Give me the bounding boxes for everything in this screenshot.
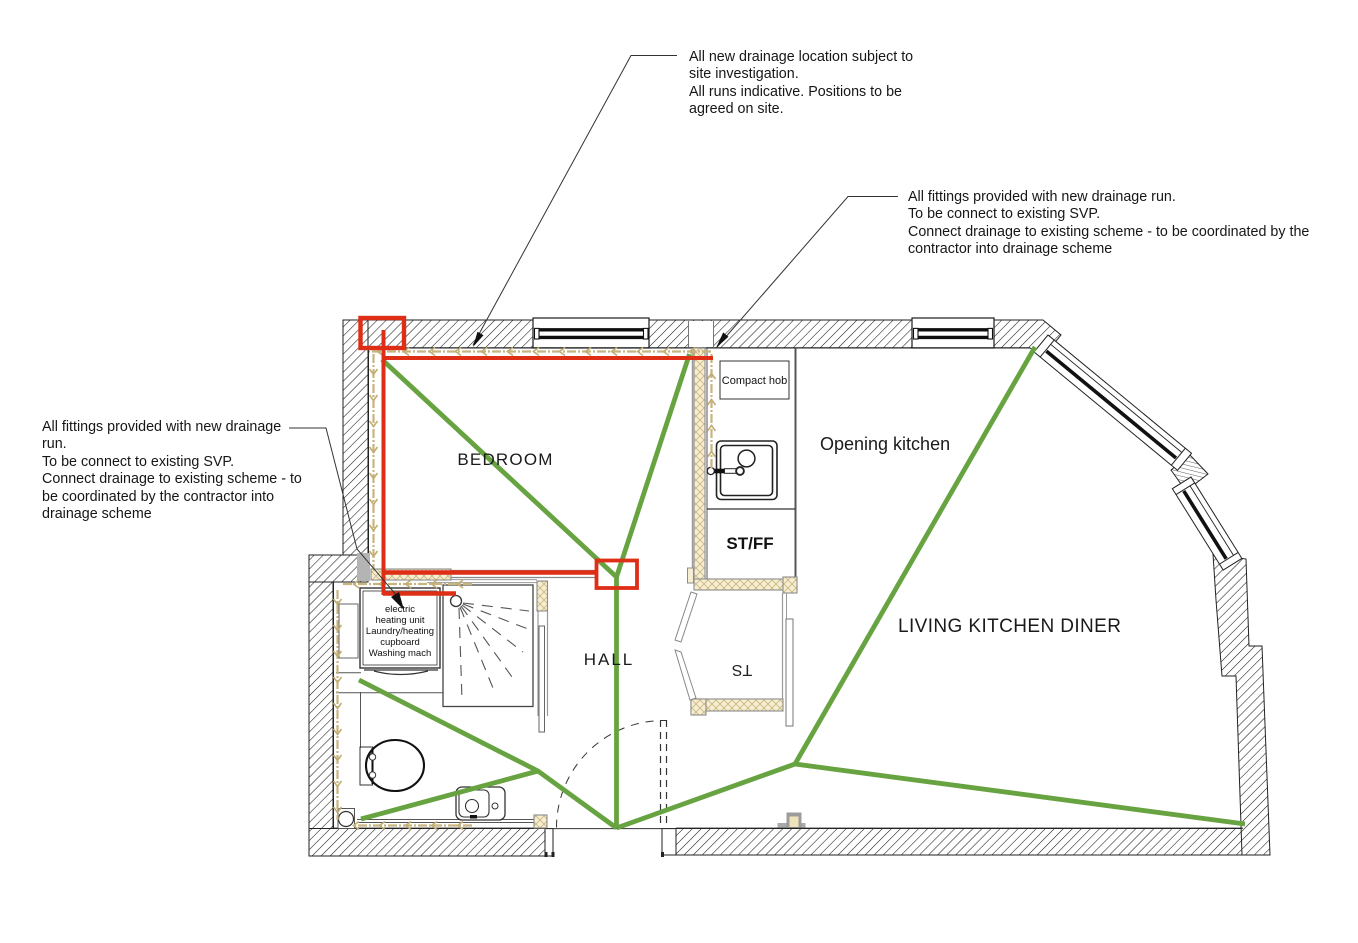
svg-text:BEDROOM: BEDROOM — [457, 450, 553, 469]
svg-text:LIVING KITCHEN DINER: LIVING KITCHEN DINER — [898, 616, 1121, 637]
svg-text:Laundry/heating: Laundry/heating — [366, 626, 434, 637]
svg-text:Compact hob: Compact hob — [722, 375, 787, 387]
svg-text:TS: TS — [732, 661, 752, 678]
svg-text:ST/FF: ST/FF — [726, 534, 773, 553]
svg-text:HALL: HALL — [584, 650, 635, 669]
svg-text:cupboard: cupboard — [380, 637, 420, 648]
svg-text:heating unit: heating unit — [375, 615, 424, 626]
svg-text:Washing mach: Washing mach — [369, 648, 431, 659]
svg-text:Opening kitchen: Opening kitchen — [820, 434, 950, 454]
